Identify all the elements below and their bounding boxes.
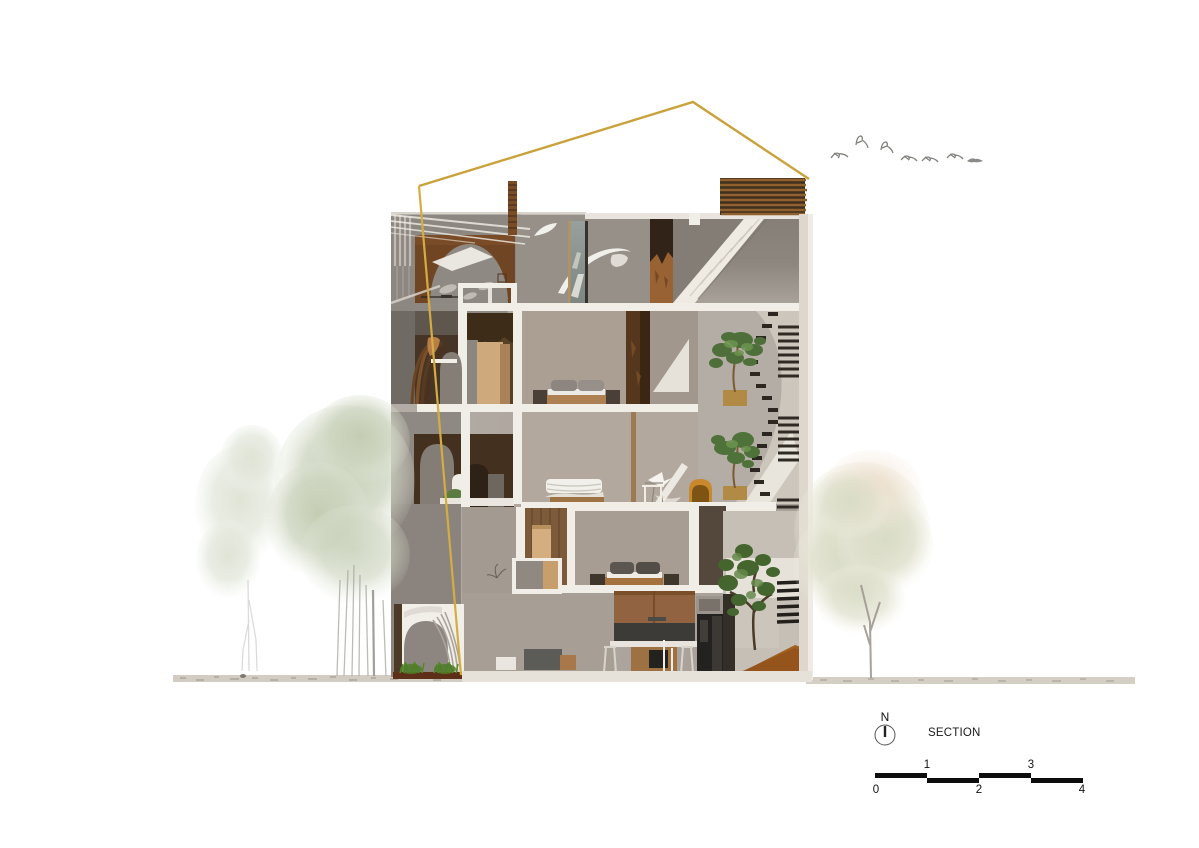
svg-text:1: 1 (924, 759, 930, 771)
svg-text:SECTION: SECTION (928, 727, 981, 739)
svg-text:2: 2 (976, 784, 982, 796)
svg-text:3: 3 (1028, 759, 1034, 771)
svg-text:0: 0 (873, 784, 879, 796)
svg-text:N: N (881, 710, 890, 724)
svg-text:4: 4 (1079, 784, 1086, 796)
